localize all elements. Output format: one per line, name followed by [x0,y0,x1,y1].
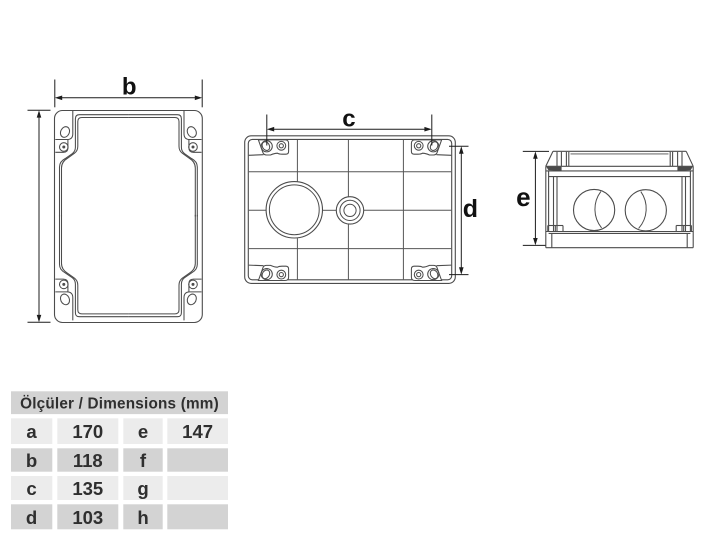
svg-text:d: d [463,195,478,223]
svg-text:103: 103 [72,507,103,528]
svg-text:d: d [26,507,37,528]
svg-text:b: b [26,450,37,471]
svg-text:e: e [516,182,530,212]
svg-text:147: 147 [182,421,213,442]
svg-text:g: g [137,478,148,499]
svg-text:a: a [26,421,37,442]
svg-text:h: h [137,507,148,528]
svg-text:118: 118 [73,450,103,471]
svg-text:135: 135 [72,478,103,499]
svg-text:f: f [140,450,147,471]
svg-text:Ölçüler / Dimensions (mm): Ölçüler / Dimensions (mm) [20,396,219,413]
svg-text:c: c [342,106,355,133]
svg-text:e: e [138,421,148,442]
svg-text:b: b [122,74,137,101]
svg-text:170: 170 [72,421,103,442]
svg-text:c: c [26,478,36,499]
